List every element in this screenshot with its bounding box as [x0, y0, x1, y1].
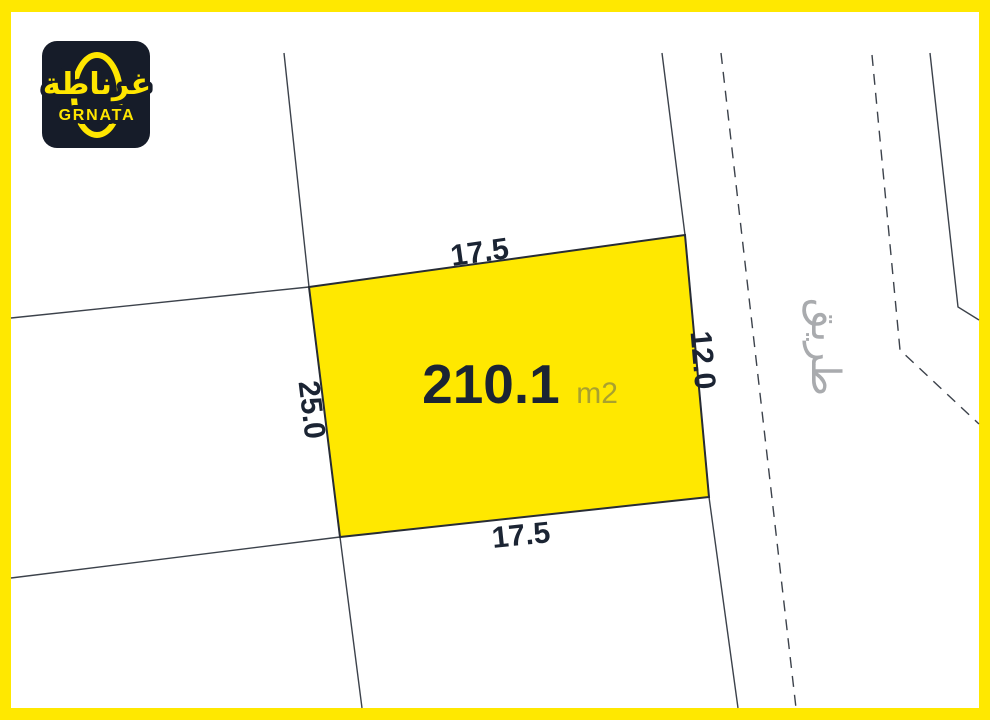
- grnata-logo: غرناطة GRNATA: [42, 41, 151, 148]
- dimension-bottom: 17.5: [490, 516, 552, 555]
- dimension-left: 25.0: [291, 379, 331, 441]
- dimension-right: 12.0: [683, 330, 721, 391]
- logo-latin-wordmark: GRNATA: [59, 107, 136, 124]
- cadastral-map: 210.1 m2 17.5 17.5 25.0 12.0 طريق غرناطة…: [0, 0, 990, 720]
- land-plot-map-page: 210.1 m2 17.5 17.5 25.0 12.0 طريق غرناطة…: [0, 0, 990, 720]
- road-name-label: طريق: [802, 298, 848, 396]
- plot-area-value: 210.1: [422, 353, 560, 415]
- plot-area-unit: m2: [576, 377, 618, 410]
- logo-arabic-wordmark: غرناطة: [43, 67, 151, 102]
